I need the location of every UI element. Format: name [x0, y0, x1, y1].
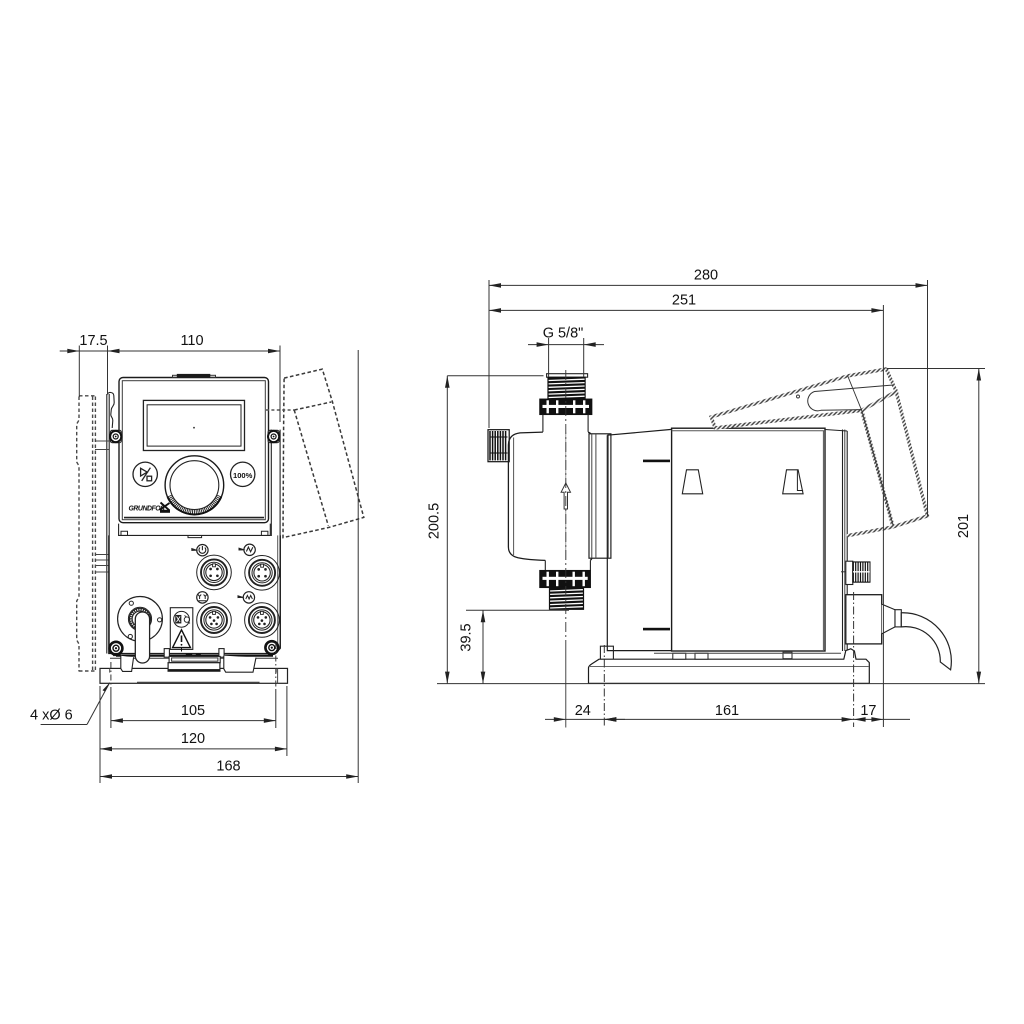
svg-text:168: 168	[216, 759, 240, 775]
svg-text:161: 161	[715, 703, 739, 719]
svg-text:G 5/8": G 5/8"	[543, 326, 584, 342]
svg-text:100%: 100%	[233, 471, 253, 480]
svg-text:105: 105	[181, 703, 205, 719]
svg-text:110: 110	[180, 333, 203, 349]
svg-text:24: 24	[575, 703, 591, 719]
svg-text:17.5: 17.5	[79, 333, 107, 349]
svg-text:280: 280	[694, 268, 718, 284]
svg-text:39.5: 39.5	[459, 623, 475, 651]
svg-text:17: 17	[860, 703, 876, 719]
svg-text:120: 120	[181, 731, 205, 747]
svg-text:200.5: 200.5	[427, 503, 443, 539]
svg-text:251: 251	[672, 293, 696, 309]
svg-text:201: 201	[956, 514, 972, 538]
svg-text:4 xØ 6: 4 xØ 6	[30, 707, 73, 723]
